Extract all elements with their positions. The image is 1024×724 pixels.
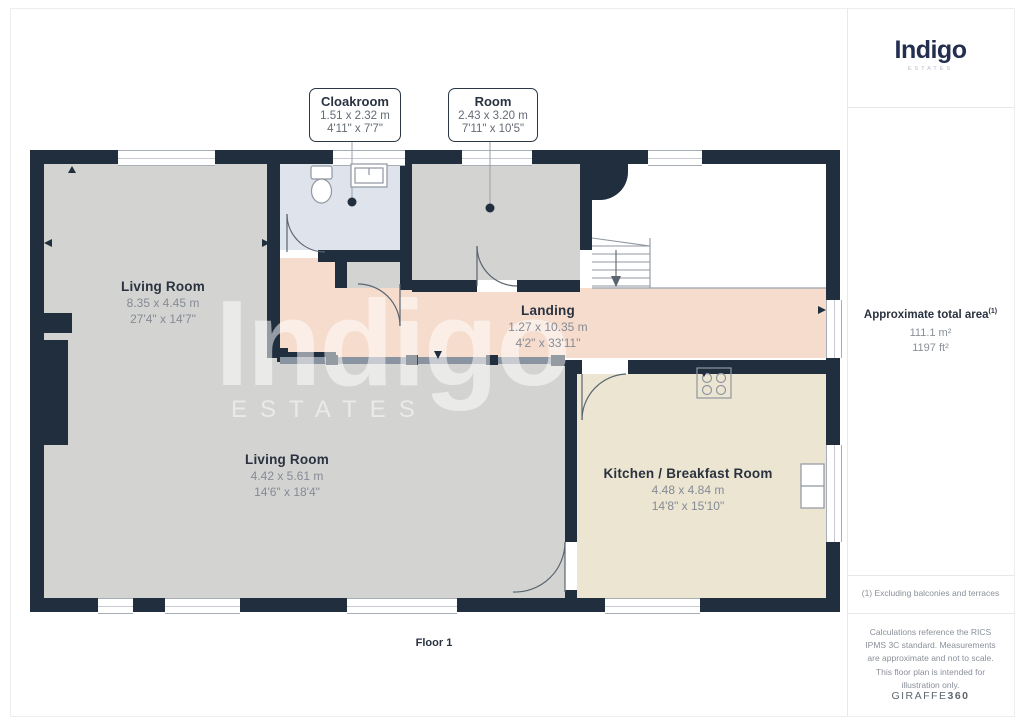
floor-landing-mid [335, 284, 412, 358]
sidebar-divider [847, 8, 848, 716]
callout-room: Room 2.43 x 3.20 m 7'11" x 10'5" [448, 88, 538, 142]
provider-logo: GIRAFFE360 [847, 690, 1014, 702]
wall-left-pier [30, 340, 68, 445]
floor-room [412, 164, 580, 280]
wall-right [826, 150, 840, 612]
floor-landing-left [280, 258, 335, 358]
provider-suffix: 360 [947, 690, 969, 702]
sidebar-divider-logo [847, 107, 1014, 108]
label-kitchen: Kitchen / Breakfast Room 4.48 x 4.84 m 1… [568, 466, 808, 513]
floor-cloakroom [280, 164, 400, 250]
total-area-metric: 111.1 m² [847, 327, 1014, 339]
landing-railing [280, 357, 565, 364]
wall-cloakroom-bottom [318, 250, 400, 262]
floorplan-page: Indigo ESTATES Living Room 8.35 x 4.45 m… [0, 0, 1024, 724]
floor-closet [347, 258, 400, 288]
window-top-living-room [118, 150, 215, 166]
wall-livingroom-kitchen-stub [565, 590, 577, 598]
brand-logo: Indigo ESTATES [847, 36, 1014, 72]
wall-cloakroom-room [400, 164, 412, 290]
provider-name: GIRAFFE [891, 690, 947, 702]
railing-post [551, 355, 565, 366]
window-top-cloakroom [333, 150, 405, 166]
floor-label: Floor 1 [334, 637, 534, 649]
sidebar-divider-footnote [847, 575, 1014, 576]
window-bottom-kitchen [605, 598, 700, 614]
wall-room-bottom-left [412, 280, 477, 292]
railing-post [406, 355, 418, 365]
window-top-room [462, 150, 532, 166]
area-footnote: (1) Excluding balconies and terraces [850, 588, 1011, 598]
callout-cloakroom: Cloakroom 1.51 x 2.32 m 4'11" x 7'7" [309, 88, 401, 142]
label-landing: Landing 1.27 x 10.35 m 4'2" x 33'11" [448, 303, 648, 350]
brand-logo-text: Indigo [847, 36, 1014, 65]
wall-room-bottom-right [517, 280, 580, 292]
disclaimer-text: Calculations reference the RICS IPMS 3C … [862, 626, 999, 692]
sidebar-divider-disclaimer [847, 613, 1014, 614]
wall-closet-left [335, 262, 347, 288]
total-area-block: Approximate total area(1) 111.1 m² 1197 … [847, 308, 1014, 354]
label-living-room-top: Living Room 8.35 x 4.45 m 27'4" x 14'7" [63, 279, 263, 326]
footnote-marker: (1) [989, 308, 998, 315]
label-living-room-bottom: Living Room 4.42 x 5.61 m 14'6" x 18'4" [187, 452, 387, 499]
window-bottom-small [98, 598, 133, 614]
wall-room-void [580, 164, 592, 250]
railing-post [486, 355, 498, 365]
window-right-kitchen [826, 445, 842, 542]
wall-livingroom-kitchen [565, 360, 577, 542]
window-top-right [648, 150, 702, 166]
total-area-imperial: 1197 ft² [847, 342, 1014, 354]
window-bottom-living-room-1 [165, 598, 240, 614]
brand-logo-tagline: ESTATES [847, 66, 1014, 72]
window-right-landing [826, 300, 842, 358]
wall-livingroom-cloakroom [267, 164, 280, 358]
floor-stair-void [592, 164, 826, 288]
wall-kitchen-top [628, 360, 826, 374]
window-bottom-living-room-2 [347, 598, 457, 614]
floor-living-room-top [44, 164, 267, 360]
total-area-title: Approximate total area(1) [847, 308, 1014, 321]
railing-post [326, 355, 338, 365]
